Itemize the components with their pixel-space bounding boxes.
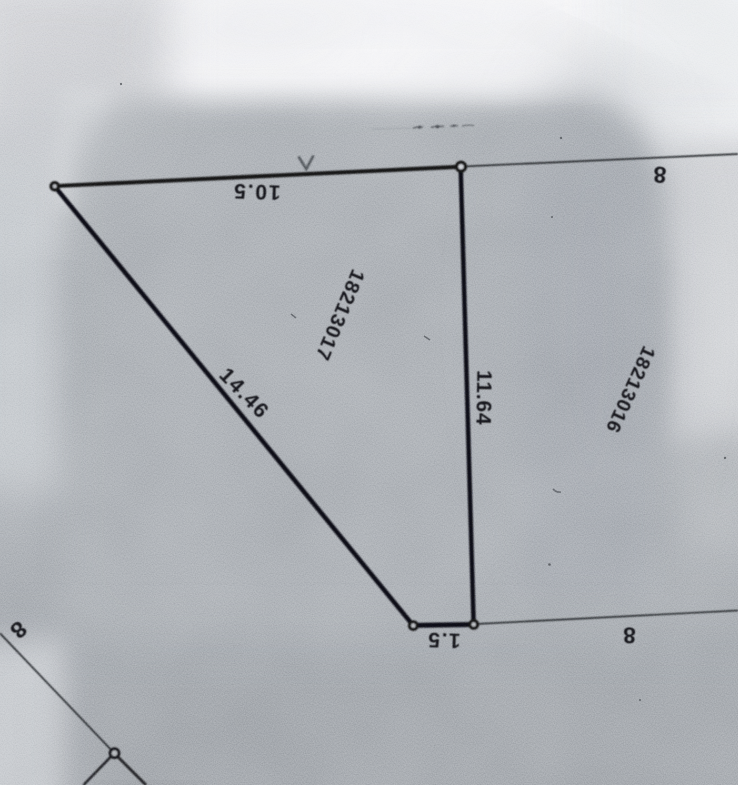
svg-text:1.5: 1.5 — [426, 628, 460, 652]
svg-text:11.64: 11.64 — [471, 370, 495, 426]
svg-text:8: 8 — [623, 623, 636, 648]
svg-text:8: 8 — [653, 162, 667, 189]
svg-text:10.5: 10.5 — [232, 179, 281, 204]
